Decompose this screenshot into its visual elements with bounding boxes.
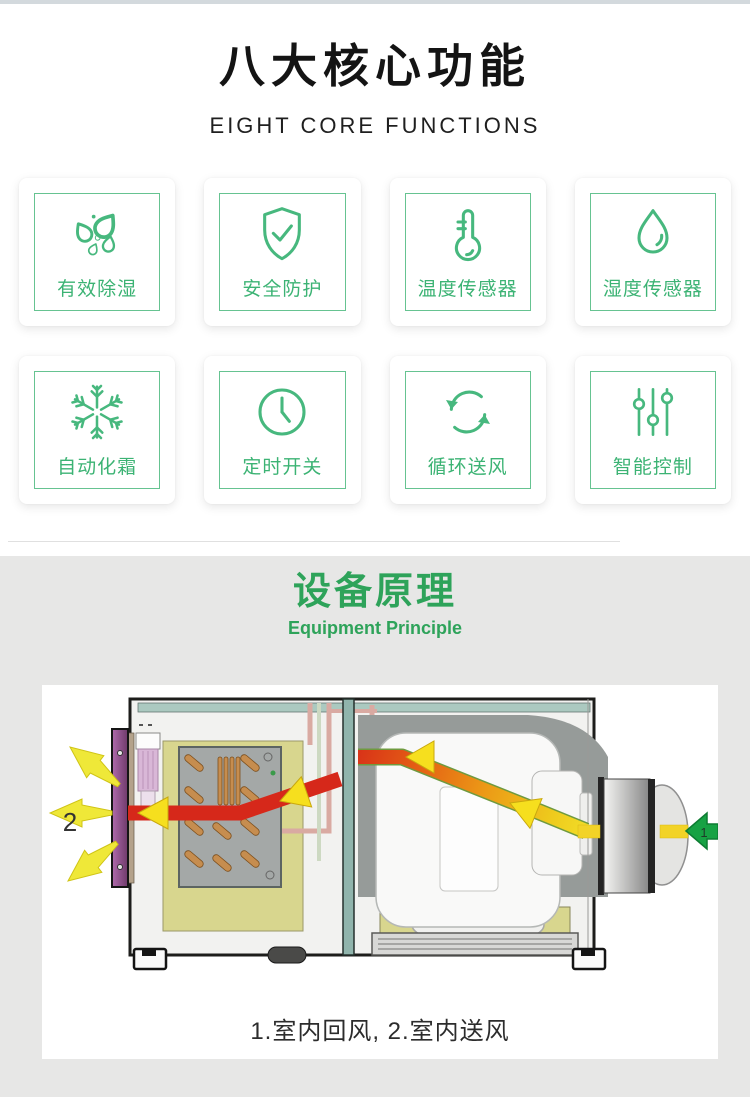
feature-card-auto-defrost: 自动化霜 bbox=[19, 356, 175, 504]
supply-air-label: 2 bbox=[63, 807, 77, 837]
section-divider-line bbox=[8, 541, 620, 542]
compartment-divider bbox=[343, 699, 354, 955]
feature-label: 自动化霜 bbox=[57, 452, 137, 479]
feature-card-air-circulation: 循环送风 bbox=[390, 356, 546, 504]
page-title: 八大核心功能 bbox=[0, 40, 750, 92]
inlet-flow-bar bbox=[578, 825, 600, 838]
feature-card-humidity-sensor: 湿度传感器 bbox=[575, 178, 731, 326]
feature-card-grid: 有效除湿 安全防护 温度传感器 bbox=[19, 178, 731, 504]
sensor-dot bbox=[271, 771, 276, 776]
cycle-arrows-icon bbox=[436, 380, 500, 444]
feature-card-timer: 定时开关 bbox=[204, 356, 360, 504]
feature-card-smart-control: 智能控制 bbox=[575, 356, 731, 504]
sliders-icon bbox=[621, 380, 685, 444]
principle-title: 设备原理 bbox=[0, 572, 750, 612]
drain-fitting bbox=[268, 947, 306, 963]
clock-icon bbox=[250, 380, 314, 444]
principle-diagram: 1 2 bbox=[42, 685, 718, 1015]
feature-label: 定时开关 bbox=[242, 452, 322, 479]
inlet-flow-bar bbox=[660, 825, 688, 838]
return-air-label: 1 bbox=[700, 825, 707, 840]
feature-card-safety: 安全防护 bbox=[204, 178, 360, 326]
principle-section: 设备原理 Equipment Principle bbox=[0, 556, 750, 1097]
top-strip bbox=[0, 0, 750, 4]
principle-subtitle: Equipment Principle bbox=[0, 618, 750, 638]
droplets-icon bbox=[65, 202, 129, 266]
feature-card-dehumidify: 有效除湿 bbox=[19, 178, 175, 326]
diagram-caption: 1.室内回风, 2.室内送风 bbox=[42, 1017, 718, 1047]
blower-panel bbox=[440, 787, 498, 891]
feature-label: 有效除湿 bbox=[57, 274, 137, 301]
feature-label: 湿度传感器 bbox=[603, 274, 703, 301]
shield-check-icon bbox=[250, 202, 314, 266]
thermometer-icon bbox=[436, 202, 500, 266]
feature-label: 温度传感器 bbox=[418, 274, 518, 301]
diagram-panel: 1 2 1.室内回风, 2.室内送风 bbox=[42, 685, 718, 1059]
inlet-plate bbox=[648, 779, 655, 893]
air-inlet-duct bbox=[604, 779, 650, 893]
page-subtitle: EIGHT CORE FUNCTIONS bbox=[0, 114, 750, 138]
feature-card-temp-sensor: 温度传感器 bbox=[390, 178, 546, 326]
louver-screw bbox=[118, 751, 123, 756]
snowflake-icon bbox=[65, 380, 129, 444]
feature-label: 安全防护 bbox=[242, 274, 322, 301]
water-drop-icon bbox=[621, 202, 685, 266]
louver-screw bbox=[118, 865, 123, 870]
feature-label: 循环送风 bbox=[428, 452, 508, 479]
feature-label: 智能控制 bbox=[613, 452, 693, 479]
page-header: 八大核心功能 EIGHT CORE FUNCTIONS bbox=[0, 40, 750, 138]
